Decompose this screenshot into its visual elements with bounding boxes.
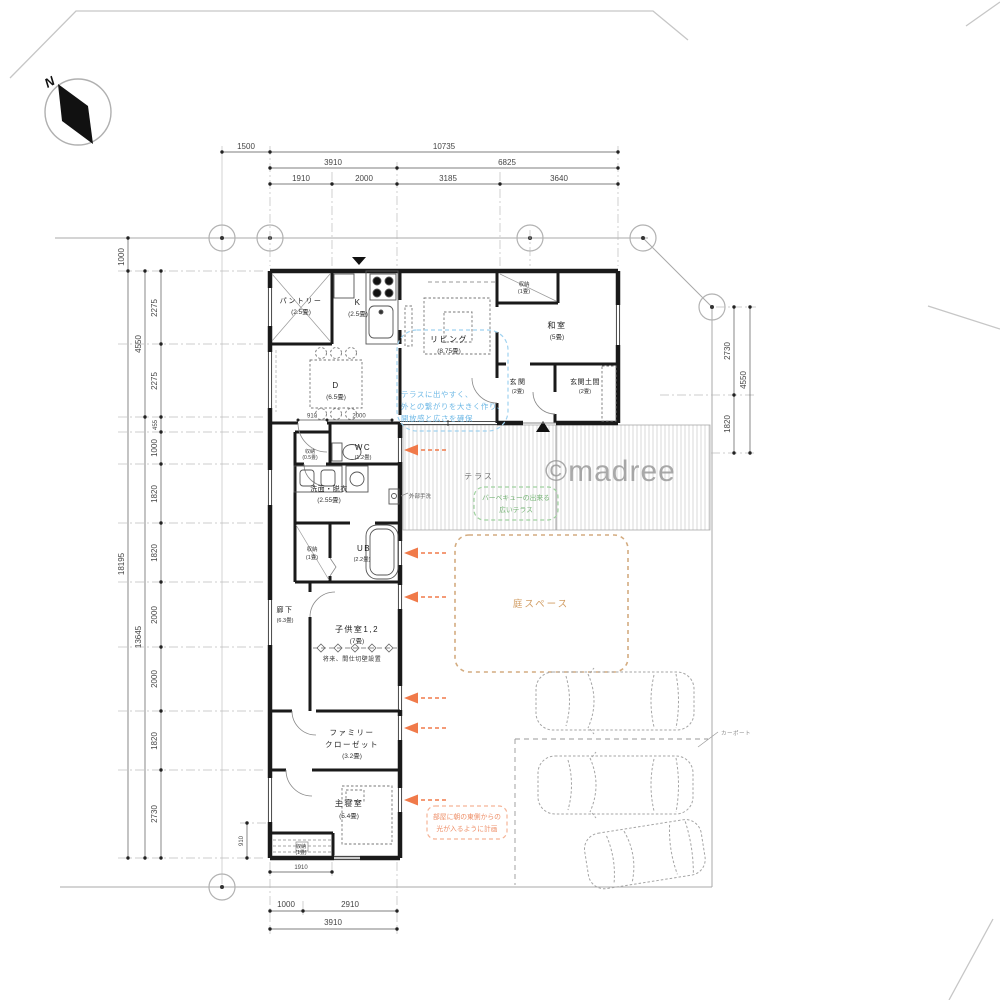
dim-label: 2000: [150, 606, 159, 624]
note-green-line2: 広いテラス: [499, 505, 533, 514]
dim-label: 1000: [277, 900, 295, 909]
dim-label: 2000: [355, 174, 373, 183]
room-size: (0.5畳): [302, 455, 318, 461]
dim-label: 13645: [134, 625, 143, 648]
car-icon: [536, 668, 694, 734]
arrow-left-icon: [404, 795, 448, 806]
fridge-icon: [334, 274, 354, 298]
room-label-storage-top: 収納: [518, 280, 530, 288]
dim-label: 455: [153, 419, 159, 430]
fixtures: [272, 257, 616, 852]
dim-label: 1820: [150, 485, 159, 503]
room-label-wc: WC: [355, 443, 371, 452]
room-label-rouka: 廊下: [277, 605, 294, 614]
room-size: (8.75畳): [437, 347, 460, 355]
room-size: (1畳): [295, 850, 306, 856]
room-size: (3.2畳): [342, 752, 362, 760]
kids-note: 将来、間仕切壁設置: [323, 655, 382, 663]
arrow-left-icon: [404, 723, 448, 734]
room-size: (7畳): [350, 637, 364, 645]
room-size: (2.2畳): [354, 556, 371, 563]
dim-label: 1000: [150, 439, 159, 457]
range-hood-icon: [352, 257, 366, 265]
note-blue-line2: 外との繋がりを大きく作り、: [401, 401, 505, 411]
note-green-line1: バーベキューの出来る: [482, 493, 550, 502]
dim-label: 1000: [117, 248, 126, 266]
watermark: ©madree: [545, 455, 676, 488]
dim-label: 910: [239, 835, 245, 846]
car-icon: [538, 752, 693, 818]
room-label-dining: D: [332, 381, 339, 390]
dim-label: 1910: [292, 174, 310, 183]
room-size: (5畳): [550, 333, 564, 341]
dim-label: 2275: [150, 299, 159, 317]
dim-label: 1910: [294, 865, 308, 871]
dim-label: 3910: [324, 158, 342, 167]
room-size: (2畳): [512, 388, 524, 395]
exterior-sink-label: 外部手洗: [409, 492, 432, 500]
room-size: (5.4畳): [339, 812, 359, 820]
room-size: (6.5畳): [326, 393, 346, 401]
washer-icon: [346, 466, 368, 492]
arrow-left-icon: [404, 693, 448, 704]
dimension-lines: [128, 152, 750, 929]
arrow-left-icon: [404, 548, 448, 559]
dim-label: 4550: [739, 371, 748, 389]
garden-space: 庭スペース: [455, 535, 628, 672]
dim-label: 2910: [341, 900, 359, 909]
room-size: (2畳): [579, 388, 591, 395]
room-size: (2.5畳): [291, 308, 311, 316]
carport: カーポート: [515, 730, 751, 885]
room-size: (2.55畳): [317, 496, 340, 504]
arrow-left-icon: [404, 592, 448, 603]
dim-label: 1820: [723, 415, 732, 433]
room-label-kitchen: K: [355, 298, 362, 307]
dim-label: 1500: [237, 142, 255, 151]
room-label-fam-closet2: クローゼット: [325, 739, 379, 749]
dim-label: 3910: [324, 918, 342, 927]
annotations: テラスに出やすく、 外との繋がりを大きく作り、 開放感と広さを確保 バーベキュー…: [397, 330, 558, 839]
dim-label: 2730: [723, 342, 732, 360]
stove-icon: [370, 274, 396, 300]
room-label-ub: UB: [357, 544, 371, 553]
walls: [270, 271, 618, 858]
room-label-master: 主寝室: [335, 798, 364, 808]
room-label-storage-bottom: 収納: [296, 843, 306, 850]
car-icon: [582, 817, 707, 891]
partition-future: [313, 644, 397, 652]
dim-label: 2275: [150, 372, 159, 390]
living-furniture: [405, 298, 490, 354]
dim-label: 3185: [439, 174, 457, 183]
dim-label: 1820: [150, 544, 159, 562]
morning-annotation-outline: [427, 806, 507, 839]
windows: [268, 288, 619, 861]
note-blue-line1: テラスに出やすく、: [401, 389, 473, 399]
room-label-storage-mid: 収納: [306, 545, 318, 553]
room-size: (6.3畳): [277, 617, 294, 624]
room-label-living: リビング: [430, 334, 468, 344]
terrace-label: テラス: [464, 472, 494, 481]
room-size: (1畳): [518, 288, 530, 295]
room-label-fam-closet: ファミリー: [330, 728, 375, 737]
room-label-kids: 子供室1,2: [335, 624, 379, 634]
room-label-pantry: パントリー: [280, 297, 323, 305]
room-label-senmen: 洗面・脱衣: [310, 484, 348, 493]
carport-label: カーポート: [721, 730, 751, 737]
room-label-storage-wc: 収納: [305, 448, 315, 455]
note-orange-line1: 部屋に朝の東側からの: [433, 812, 501, 821]
dim-label: 1820: [150, 732, 159, 750]
dim-label: 4550: [134, 335, 143, 353]
note-blue-line3: 開放感と広さを確保: [401, 413, 473, 423]
north-arrow: N: [42, 73, 111, 145]
room-label-washitsu: 和室: [548, 320, 567, 330]
dim-label: 18195: [117, 552, 126, 575]
dim-label: 3640: [550, 174, 568, 183]
dim-label: 2730: [150, 805, 159, 823]
cars: [536, 668, 708, 891]
room-label-genkan-doma: 玄関土間: [570, 377, 600, 386]
dim-label: 6825: [498, 158, 516, 167]
room-size: (1.2畳): [355, 454, 372, 461]
floor-plan: N: [0, 0, 1000, 1000]
note-orange-line2: 光が入るように計画: [436, 824, 497, 833]
dim-label: 2000: [150, 670, 159, 688]
dim-label: 10735: [433, 142, 456, 151]
room-size: (1畳): [306, 554, 318, 561]
room-label-genkan: 玄関: [510, 377, 527, 386]
kitchen-sink-icon: [369, 306, 393, 338]
room-size: (2.5畳): [348, 310, 368, 318]
garden-label: 庭スペース: [513, 598, 569, 610]
